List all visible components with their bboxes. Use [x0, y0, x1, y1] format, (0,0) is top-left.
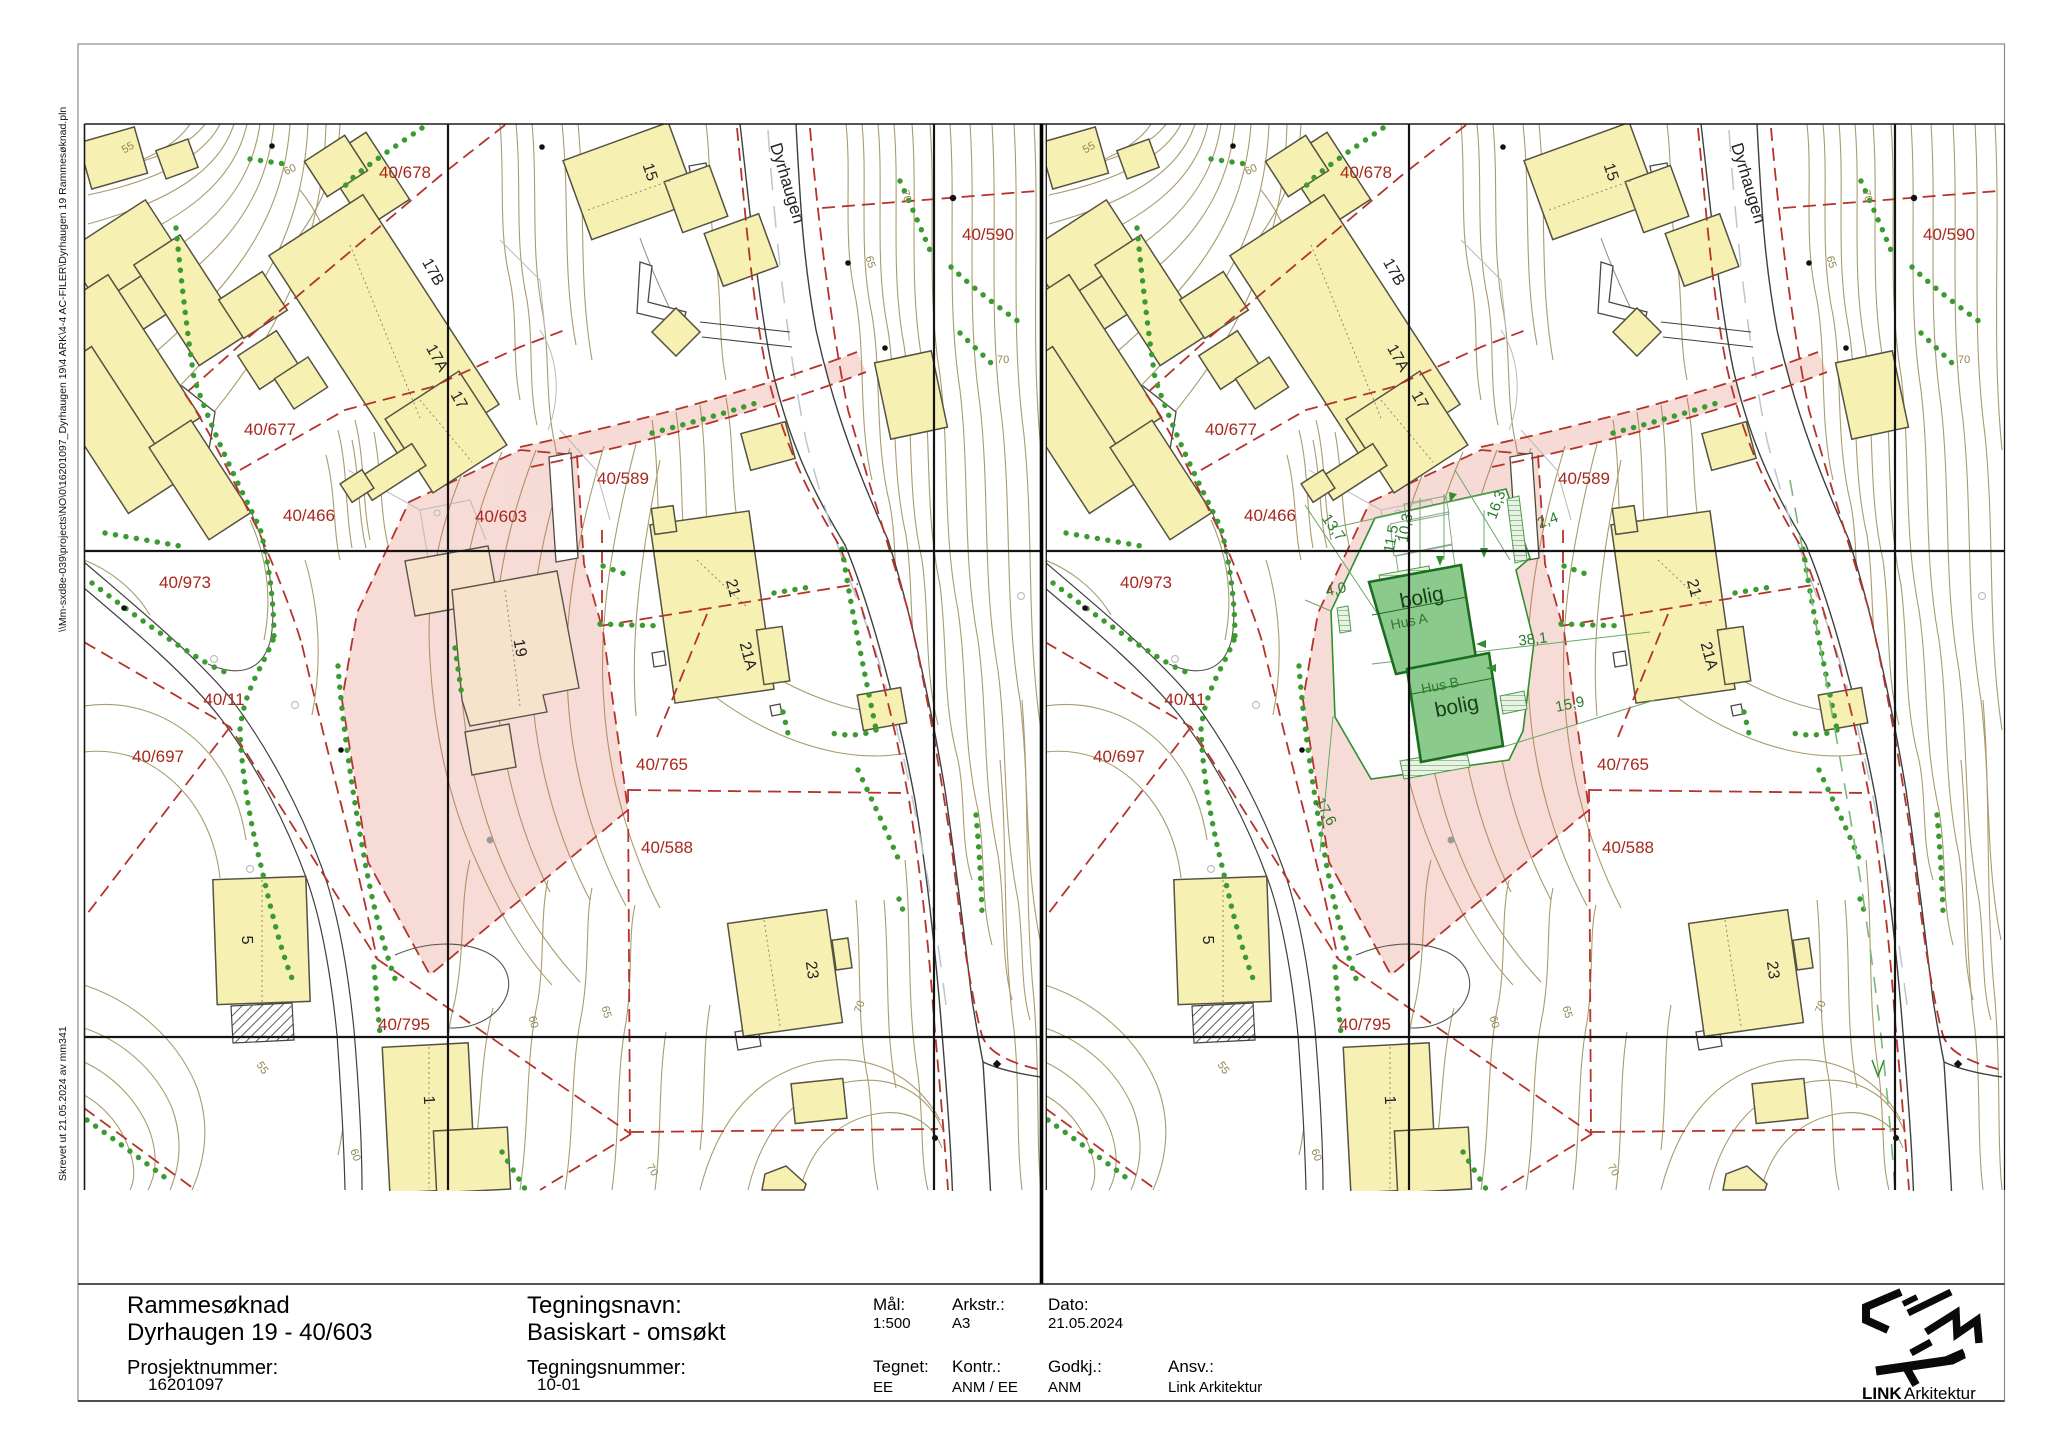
svg-text:Godkj.:: Godkj.: [1048, 1357, 1102, 1376]
svg-text:38,1: 38,1 [1517, 629, 1548, 649]
svg-text:21.05.2024: 21.05.2024 [1048, 1315, 1123, 1332]
svg-text:40/603: 40/603 [475, 507, 527, 526]
svg-text:Kontr.:: Kontr.: [952, 1357, 1001, 1376]
svg-text:10-01: 10-01 [537, 1375, 580, 1394]
svg-text:Link Arkitektur: Link Arkitektur [1168, 1379, 1262, 1396]
svg-text:\\Mm-sxd8e-039\projects\NO\0\1: \\Mm-sxd8e-039\projects\NO\0\16201097_Dy… [57, 107, 69, 632]
svg-text:ANM: ANM [1048, 1379, 1081, 1396]
svg-text:Ansv.:: Ansv.: [1168, 1357, 1214, 1376]
svg-text:Dyrhaugen 19 - 40/603: Dyrhaugen 19 - 40/603 [127, 1319, 373, 1346]
svg-text:A3: A3 [952, 1315, 970, 1332]
svg-text:Tegningsnavn:: Tegningsnavn: [527, 1292, 682, 1319]
svg-text:ANM / EE: ANM / EE [952, 1379, 1018, 1396]
svg-text:LINK: LINK [1862, 1384, 1902, 1403]
svg-text:Rammesøknad: Rammesøknad [127, 1292, 290, 1319]
svg-text:19: 19 [510, 638, 530, 659]
svg-text:16201097: 16201097 [148, 1375, 224, 1394]
svg-text:Skrevet ut 21.05.2024 av mm341: Skrevet ut 21.05.2024 av mm341 [57, 1026, 69, 1181]
svg-text:Basiskart - omsøkt: Basiskart - omsøkt [527, 1319, 726, 1346]
svg-text:Arkitektur: Arkitektur [1904, 1384, 1976, 1403]
svg-text:Tegnet:: Tegnet: [873, 1357, 929, 1376]
svg-text:Dato:: Dato: [1048, 1295, 1089, 1314]
svg-text:EE: EE [873, 1379, 893, 1396]
svg-text:Arkstr.:: Arkstr.: [952, 1295, 1005, 1314]
svg-text:1:500: 1:500 [873, 1315, 911, 1332]
svg-text:Mål:: Mål: [873, 1295, 905, 1314]
